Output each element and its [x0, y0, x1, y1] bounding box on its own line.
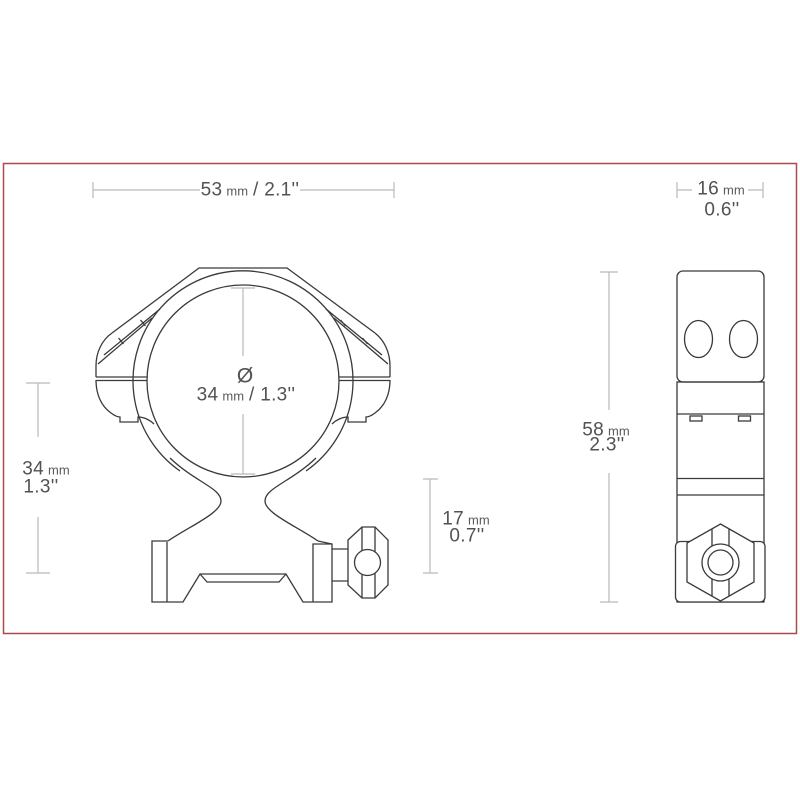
dim-side-height-imperial-label: 2.3''	[589, 436, 624, 455]
side-view	[676, 271, 766, 602]
front-left-ear-lower	[96, 380, 154, 424]
front-stem-right-edge	[265, 458, 318, 541]
side-height-imperial: 2.3''	[589, 435, 624, 456]
dim-diameter-label: 34mm/ 1.3''	[197, 386, 296, 405]
technical-drawing	[0, 0, 800, 800]
side-screw-hole-right	[730, 321, 758, 358]
dim-side-width-imperial-label: 0.6''	[704, 201, 739, 220]
front-left-split-line	[96, 377, 147, 381]
dim-side-width-label: 16mm	[697, 180, 744, 199]
side-screw-head-inner	[708, 550, 733, 575]
front-width-imperial: / 2.1''	[253, 180, 299, 201]
front-right-split-line	[339, 377, 390, 381]
front-stem-left-edge	[168, 458, 221, 541]
diameter-unit: mm	[222, 389, 244, 404]
front-screw-neck	[332, 549, 348, 581]
side-top-cap	[677, 271, 764, 382]
diameter-metric: 34	[197, 385, 219, 406]
side-width-unit: mm	[723, 183, 745, 198]
side-notch-right	[739, 416, 751, 421]
front-base-rail-chamfer	[200, 574, 286, 582]
dim-ring-height-imperial-label: 1.3''	[23, 478, 58, 497]
side-rail-lines	[677, 479, 764, 496]
ring-height-imperial: 1.3''	[23, 477, 58, 498]
diameter-imperial: / 1.3''	[249, 385, 295, 406]
dimension-lines	[26, 182, 763, 602]
side-width-imperial: 0.6''	[704, 200, 739, 221]
front-nut-screw-hole	[355, 550, 381, 576]
dim-front-width-label: 53mm/ 2.1''	[201, 181, 300, 200]
dim-diameter-symbol: Ø	[237, 366, 253, 387]
front-right-ear-lower	[332, 380, 390, 424]
front-width-unit: mm	[226, 184, 248, 199]
side-screw-hole-left	[685, 321, 713, 358]
front-width-metric: 53	[201, 180, 223, 201]
side-notch-left	[690, 416, 702, 421]
dim-line-base-height	[423, 479, 438, 573]
side-width-metric: 16	[697, 179, 719, 200]
page: 53mm/ 2.1'' 16mm 0.6'' 34mm 1.3'' Ø 34mm…	[0, 0, 800, 800]
dim-base-height-imperial-label: 0.7''	[449, 527, 484, 546]
front-base-clamp-plate	[313, 544, 332, 602]
front-base-outline	[152, 541, 332, 602]
ring-height-unit: mm	[48, 463, 70, 478]
base-height-imperial: 0.7''	[449, 526, 484, 547]
